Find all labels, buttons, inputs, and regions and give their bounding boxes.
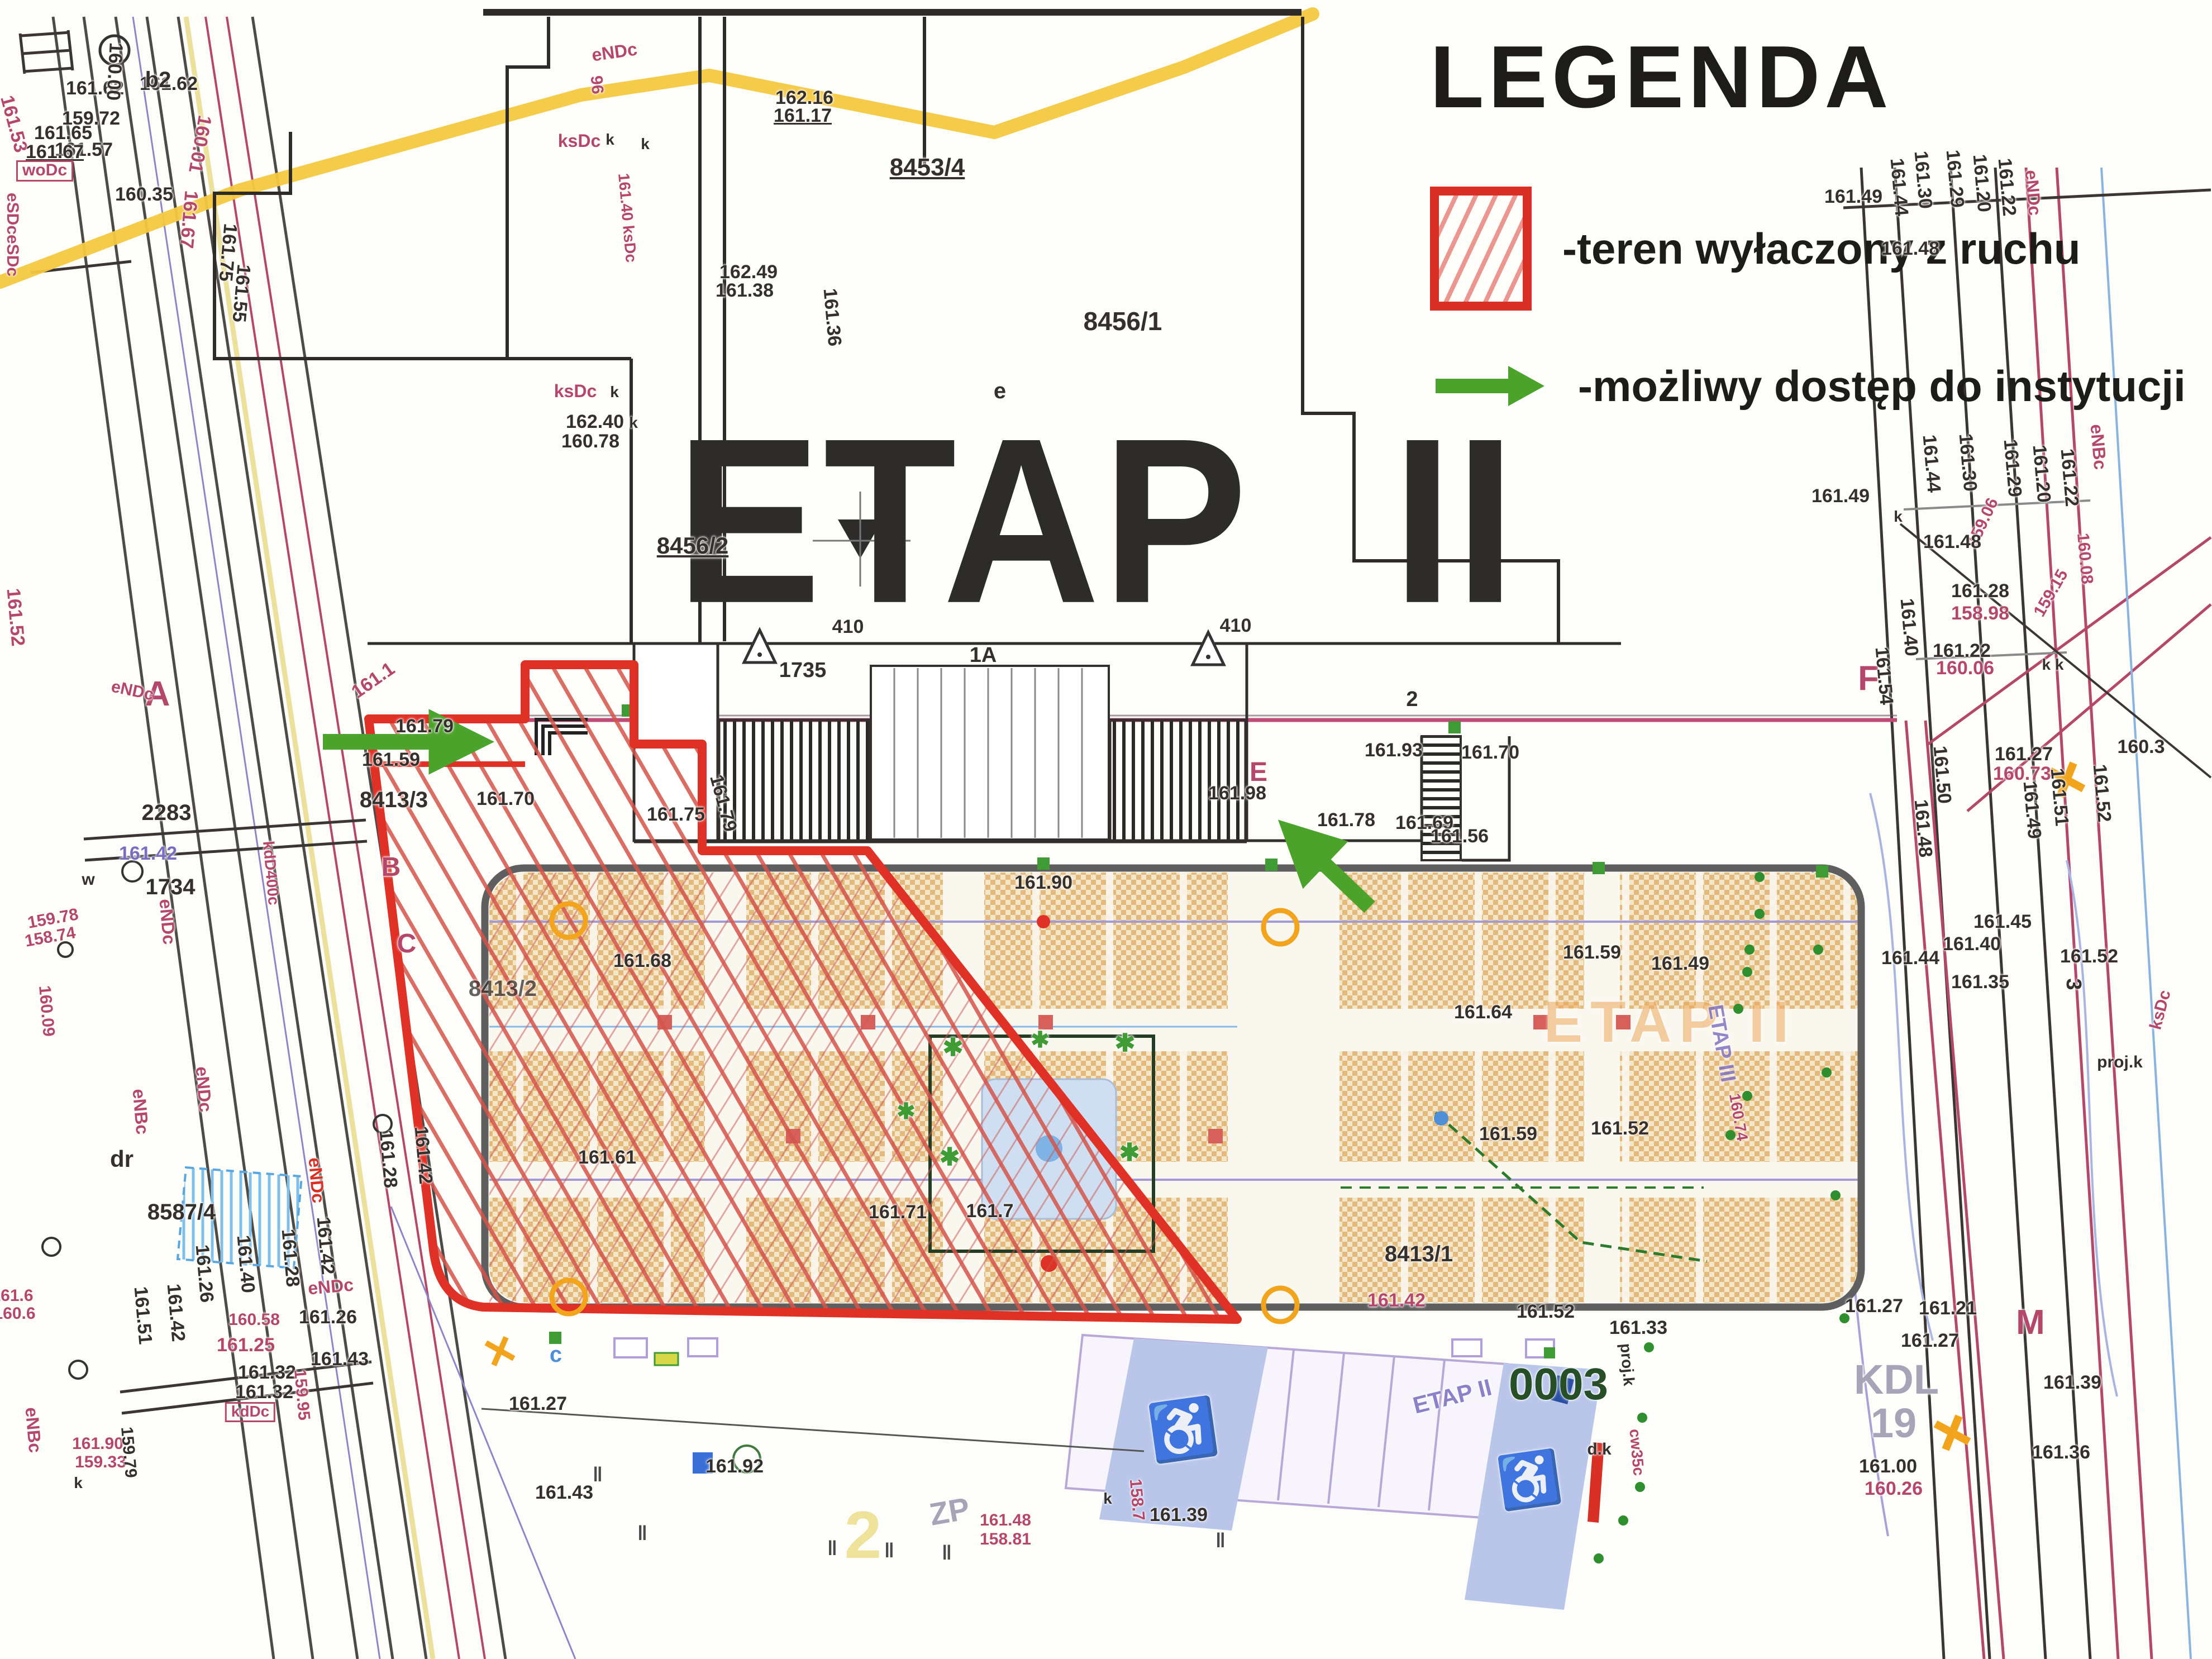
map-label: 160.78 bbox=[561, 432, 619, 451]
map-label: 161.67 bbox=[177, 190, 201, 250]
map-label: ZP bbox=[927, 1493, 972, 1531]
map-label: ksDc bbox=[2147, 988, 2174, 1031]
map-label: 161.32 bbox=[238, 1363, 296, 1382]
map-label: 161.59 bbox=[1563, 943, 1621, 962]
map-label: eNDc bbox=[590, 40, 638, 64]
map-label: 161.52 bbox=[1591, 1119, 1649, 1138]
map-label: 161.49 bbox=[1651, 954, 1709, 973]
map-label: 8456/2 bbox=[657, 534, 728, 557]
map-label: M bbox=[2016, 1305, 2045, 1340]
map-label: 161.54 bbox=[1872, 646, 1896, 706]
map-label: 161.93 bbox=[1365, 741, 1423, 760]
map-label: 161.67 bbox=[26, 142, 84, 161]
map-label: 161.30 bbox=[1956, 433, 1980, 493]
map-label: 8413/3 bbox=[360, 789, 428, 811]
map-label: 161.22 bbox=[1995, 158, 2019, 217]
map-label: eSDceSDc bbox=[4, 193, 21, 276]
map-label: 161.40 bbox=[234, 1234, 258, 1294]
map-label: 161.43 bbox=[311, 1350, 369, 1369]
map-label: 161.68 bbox=[613, 951, 671, 970]
map-label: ✱ bbox=[1119, 1141, 1140, 1165]
map-label: 160.09 bbox=[36, 985, 57, 1037]
map-label: 161.39 bbox=[2043, 1373, 2101, 1392]
map-label: 8456/1 bbox=[1084, 308, 1162, 334]
map-label: 159.95 bbox=[291, 1369, 312, 1421]
map-label: k bbox=[641, 136, 650, 152]
map-label: 161.43 bbox=[535, 1483, 593, 1502]
map-label: kdDc bbox=[225, 1402, 275, 1422]
map-label: ETAP II bbox=[1544, 993, 1796, 1051]
map-label: 160.06 bbox=[1936, 659, 1994, 678]
map-label: 159.79 bbox=[118, 1426, 139, 1479]
map-label: 161.30 bbox=[1911, 150, 1936, 210]
map-label: 161.28 bbox=[376, 1129, 401, 1189]
map-label: 158.98 bbox=[1951, 604, 2009, 623]
map-label: 161.59 bbox=[1479, 1124, 1537, 1143]
map-label: kdD400c bbox=[260, 840, 282, 905]
map-label: 161.17 bbox=[774, 106, 832, 125]
map-label: 3 bbox=[2063, 978, 2084, 990]
map-label: 161.90 bbox=[72, 1436, 123, 1452]
map-label: b2 bbox=[145, 69, 171, 91]
map-label: ksDc bbox=[558, 132, 601, 150]
map-label: 161.59 bbox=[362, 750, 420, 769]
map-label: 161.48 bbox=[1911, 799, 1936, 859]
map-label: 161.44 bbox=[1920, 434, 1944, 494]
map-label: 161.40 ksDc bbox=[616, 173, 639, 263]
map-label: d.k bbox=[1587, 1441, 1611, 1458]
map-label: ✱ bbox=[940, 1145, 960, 1170]
map-label: 161.51 bbox=[2048, 767, 2072, 827]
map-label: 162.40 bbox=[566, 412, 624, 431]
map-label: B bbox=[382, 854, 401, 881]
map-label: 161.42 bbox=[412, 1126, 436, 1185]
map-label: 161.25 bbox=[217, 1336, 275, 1355]
map-label: 161.26 bbox=[193, 1244, 217, 1304]
map-label: ksDc bbox=[554, 382, 597, 400]
map-label: e bbox=[994, 380, 1006, 402]
map-label: 160.00 bbox=[103, 42, 125, 101]
map-label: 161.42 bbox=[164, 1283, 188, 1343]
map-labels: 161.62159.72161.57160.35160.00161.62160.… bbox=[0, 0, 2212, 1659]
map-label: 2283 bbox=[142, 802, 192, 824]
map-label: eNDc bbox=[307, 1275, 354, 1297]
map-label: 161.70 bbox=[476, 789, 535, 808]
map-label: 161.32 bbox=[235, 1382, 293, 1401]
map-label: 161.20 bbox=[1970, 154, 1994, 213]
map-label: woDc bbox=[16, 160, 73, 182]
map-label: 1735 bbox=[779, 660, 827, 681]
map-label: k bbox=[1894, 509, 1903, 525]
map-label: 160.26 bbox=[1865, 1479, 1923, 1498]
map-label: proj.k bbox=[1618, 1343, 1637, 1386]
map-label: 160.58 bbox=[228, 1312, 280, 1328]
map-label: ETAP II bbox=[1410, 1375, 1494, 1417]
map-label: 161.22 bbox=[2058, 448, 2082, 508]
map-label: 1A bbox=[970, 645, 997, 666]
map-label: 161.49 bbox=[2020, 780, 2044, 840]
site-plan: ETAP II LEGENDA -teren wyłaczony z ruchu… bbox=[0, 0, 2212, 1659]
map-label: 161.35 bbox=[1951, 972, 2009, 991]
map-label: 161.42 bbox=[119, 844, 177, 863]
map-label: 161.44 bbox=[1887, 158, 1911, 217]
map-label: 1734 bbox=[146, 876, 196, 898]
map-label: 161.40 bbox=[1898, 598, 1922, 657]
map-label: 161.52 bbox=[2060, 947, 2118, 966]
map-label: C bbox=[397, 931, 417, 957]
map-label: 8587/4 bbox=[147, 1201, 216, 1223]
map-label: eNDc bbox=[193, 1066, 214, 1113]
map-label: 161.40 bbox=[1943, 935, 2001, 954]
map-label: eNDc bbox=[156, 898, 178, 945]
map-label: 161.79 bbox=[707, 773, 740, 833]
map-label: 161.71 bbox=[869, 1203, 927, 1222]
map-label: 160.3 bbox=[2117, 737, 2165, 756]
map-label: 161.1 bbox=[348, 659, 398, 702]
map-label: 160.08 bbox=[2074, 532, 2095, 585]
map-label: 160.01 bbox=[185, 114, 214, 174]
map-label: k bbox=[610, 384, 619, 400]
map-label: 161.36 bbox=[821, 288, 845, 347]
map-label: 161.49 bbox=[1811, 487, 1870, 506]
map-label: 19 bbox=[1871, 1403, 1917, 1444]
map-label: 161.52 bbox=[1517, 1302, 1575, 1321]
map-label: 161.49 bbox=[1824, 187, 1882, 206]
map-label: 0003 bbox=[1509, 1362, 1608, 1407]
map-label: k bbox=[1103, 1491, 1112, 1507]
map-label: eNDc bbox=[306, 1157, 327, 1204]
map-label: 161.27 bbox=[1901, 1331, 1959, 1350]
map-label: eNDc bbox=[2022, 169, 2044, 216]
map-label: 161.61 bbox=[578, 1148, 636, 1167]
map-label: k bbox=[74, 1475, 83, 1491]
map-label: 2 bbox=[1406, 689, 1418, 710]
map-label: 161.65 bbox=[34, 123, 92, 142]
map-label: 96 bbox=[588, 75, 606, 95]
map-label: 161.27 bbox=[509, 1394, 567, 1413]
map-label: c bbox=[550, 1343, 562, 1366]
map-label: 161.42 bbox=[1367, 1291, 1426, 1310]
map-label: 161.70 bbox=[1461, 743, 1519, 762]
map-label: ♿ bbox=[1145, 1398, 1221, 1462]
map-label: 160.35 bbox=[115, 185, 173, 204]
map-label: 161.92 bbox=[705, 1457, 764, 1476]
map-label: 161.26 bbox=[299, 1308, 357, 1327]
map-label: 161.64 bbox=[1454, 1003, 1512, 1022]
map-label: 162.49 bbox=[719, 263, 778, 282]
map-label: 161.38 bbox=[716, 281, 774, 300]
map-label: ‖ bbox=[637, 1523, 647, 1543]
map-label: 161.51 bbox=[131, 1286, 155, 1346]
map-label: k k bbox=[2042, 657, 2064, 673]
map-label: 161.50 bbox=[1930, 745, 1954, 805]
map-label: ‖ bbox=[1215, 1531, 1226, 1551]
map-label: ‖ bbox=[942, 1543, 952, 1563]
map-label: proj.k bbox=[2097, 1054, 2143, 1071]
map-label: 161.28 bbox=[1951, 581, 2009, 600]
map-label: k bbox=[629, 415, 638, 431]
map-label: 161.29 bbox=[2001, 438, 2025, 498]
map-label: 8413/2 bbox=[469, 978, 537, 1000]
map-label: 8413/1 bbox=[1385, 1243, 1453, 1265]
map-label: 161.00 bbox=[1859, 1457, 1917, 1476]
map-label: 161.20 bbox=[2030, 444, 2054, 504]
map-label: ♿ bbox=[1494, 1450, 1565, 1510]
map-label: 161.48 bbox=[1923, 532, 1981, 551]
map-label: 161.21 bbox=[1919, 1299, 1977, 1318]
map-label: 161.27 bbox=[1845, 1296, 1903, 1315]
map-label: 161.36 bbox=[2032, 1443, 2090, 1462]
map-label: 161.78 bbox=[1317, 811, 1375, 830]
map-label: 160.6 bbox=[0, 1305, 36, 1322]
map-label: k bbox=[606, 132, 614, 147]
map-label: E bbox=[1250, 759, 1267, 786]
map-label: 161.27 bbox=[1995, 745, 2053, 764]
map-label: 161.7 bbox=[966, 1202, 1013, 1221]
map-label: 161.45 bbox=[1973, 912, 2032, 931]
map-label: 161.48 bbox=[980, 1512, 1031, 1529]
map-label: 161.39 bbox=[1150, 1505, 1208, 1524]
map-label: 161.52 bbox=[2090, 764, 2114, 823]
map-label: ‖ bbox=[884, 1541, 894, 1561]
map-label: 158.81 bbox=[980, 1531, 1031, 1548]
map-label: dr bbox=[110, 1147, 134, 1171]
map-label: 160.73 bbox=[1993, 764, 2051, 783]
map-label: 161.52 bbox=[4, 588, 28, 647]
map-label: 2 bbox=[845, 1501, 882, 1569]
map-label: 8453/4 bbox=[890, 155, 965, 180]
map-label: 410 bbox=[1220, 616, 1252, 635]
map-label: 161.79 bbox=[395, 717, 454, 736]
map-label: ✱ bbox=[897, 1100, 916, 1123]
map-label: w bbox=[82, 871, 94, 888]
map-label: eNBc bbox=[130, 1088, 151, 1135]
map-label: 410 bbox=[832, 617, 864, 636]
map-label: 161.44 bbox=[1881, 948, 1939, 967]
map-label: 161.90 bbox=[1014, 873, 1072, 892]
map-label: 162.16 bbox=[775, 88, 833, 107]
map-label: 161.28 bbox=[279, 1228, 303, 1288]
map-label: cw35c bbox=[1627, 1428, 1646, 1476]
map-label: eNBc bbox=[2087, 423, 2109, 470]
map-label: KDL bbox=[1854, 1359, 1939, 1400]
map-label: 161.42 bbox=[314, 1216, 338, 1276]
map-label: 158.7 bbox=[1127, 1478, 1147, 1521]
map-label: 161.48 bbox=[1881, 239, 1939, 258]
map-label: 161.56 bbox=[1431, 827, 1489, 846]
map-label: 161.6 bbox=[0, 1288, 34, 1304]
map-label: 161.33 bbox=[1609, 1318, 1667, 1337]
map-label: ✱ bbox=[1115, 1031, 1136, 1056]
map-label: ✱ bbox=[1031, 1029, 1050, 1051]
map-label: 161.55 bbox=[230, 264, 254, 323]
map-label: 161.75 bbox=[647, 805, 705, 824]
map-label: ✱ bbox=[943, 1036, 964, 1060]
map-label: ‖ bbox=[593, 1465, 603, 1485]
map-label: 159.33 bbox=[75, 1454, 126, 1471]
map-label: 159.15 bbox=[2031, 567, 2071, 619]
map-label: 160.74 bbox=[1727, 1092, 1750, 1142]
map-label: eNBc bbox=[22, 1407, 44, 1453]
map-label: ‖ bbox=[827, 1538, 837, 1558]
map-label: 161.29 bbox=[1943, 149, 1967, 209]
